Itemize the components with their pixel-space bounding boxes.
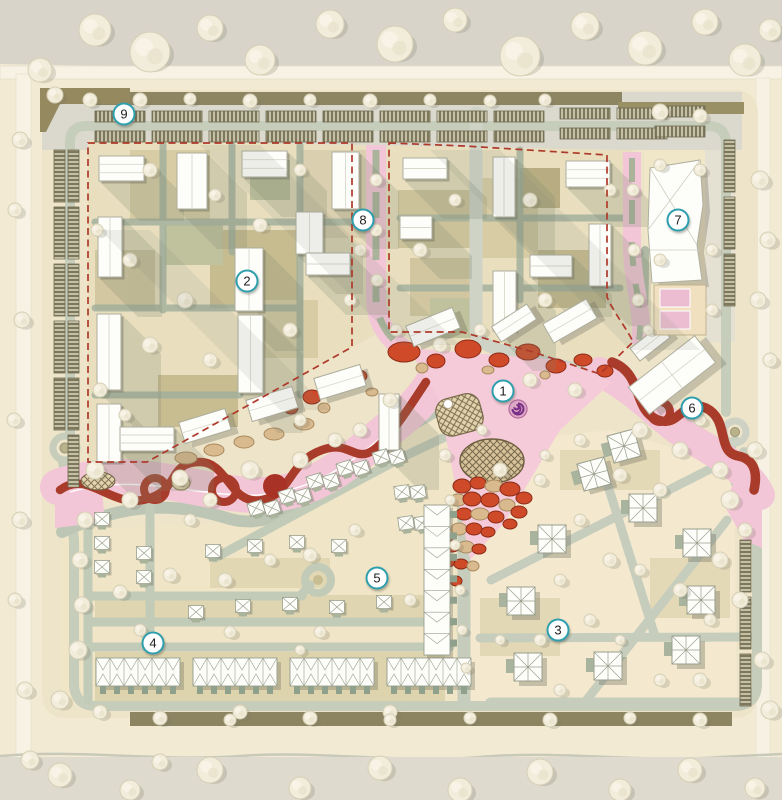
- marker-5[interactable]: 5: [366, 567, 389, 590]
- marker-8[interactable]: 8: [352, 209, 375, 232]
- marker-1[interactable]: 1: [492, 380, 515, 403]
- marker-6[interactable]: 6: [681, 397, 704, 420]
- marker-2[interactable]: 2: [236, 270, 259, 293]
- marker-7[interactable]: 7: [667, 209, 690, 232]
- marker-4[interactable]: 4: [142, 632, 165, 655]
- markers-layer: 123456789: [0, 0, 782, 800]
- marker-9[interactable]: 9: [113, 103, 136, 126]
- marker-3[interactable]: 3: [547, 619, 570, 642]
- masterplan-map: 123456789: [0, 0, 782, 800]
